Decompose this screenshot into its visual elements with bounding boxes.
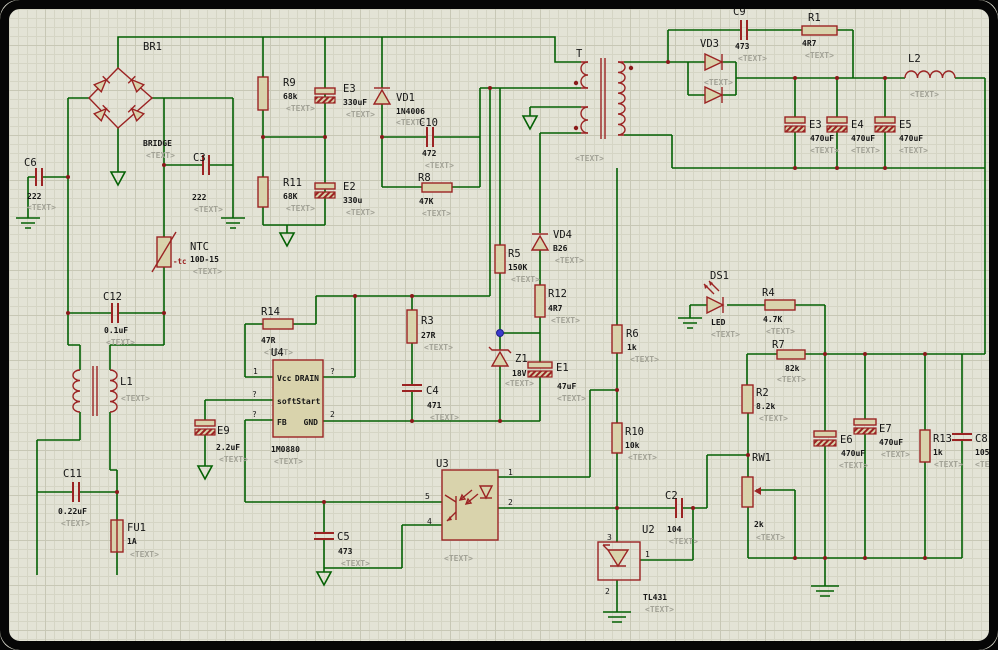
r1-ref-label[interactable]: R1 bbox=[808, 12, 821, 24]
r5-text-placeholder[interactable]: <TEXT> bbox=[511, 275, 540, 284]
u2-pin-number-2: 2 bbox=[605, 587, 610, 596]
e9-text-placeholder[interactable]: <TEXT> bbox=[219, 455, 248, 464]
c4-text-placeholder[interactable]: <TEXT> bbox=[430, 413, 459, 422]
r9-text-placeholder[interactable]: <TEXT> bbox=[286, 104, 315, 113]
c12-ref-label[interactable]: C12 bbox=[103, 291, 122, 303]
r3-text-placeholder[interactable]: <TEXT> bbox=[424, 343, 453, 352]
c11-text-placeholder[interactable]: <TEXT> bbox=[61, 519, 90, 528]
r7-value-label[interactable]: 82k bbox=[785, 364, 800, 373]
c11-ref-label[interactable]: C11 bbox=[63, 468, 82, 480]
ntc-ref-label[interactable]: NTC bbox=[190, 241, 209, 253]
u3-ref-label[interactable]: U3 bbox=[436, 458, 449, 470]
l2-text-placeholder[interactable]: <TEXT> bbox=[910, 90, 939, 99]
e3b-text-placeholder[interactable]: <TEXT> bbox=[810, 146, 839, 155]
r6-ref-label[interactable]: R6 bbox=[626, 328, 639, 340]
e3a-text-placeholder[interactable]: <TEXT> bbox=[346, 110, 375, 119]
e7-value-label[interactable]: 470uF bbox=[879, 438, 903, 447]
r12-value-label[interactable]: 4R7 bbox=[548, 304, 563, 313]
component-u4[interactable]: U4 Vcc DRAIN softStart FB GND 1 ? ? ? 2 … bbox=[252, 347, 335, 466]
u4-pin-label-fb: FB bbox=[277, 418, 287, 427]
r1-text-placeholder[interactable]: <TEXT> bbox=[805, 51, 834, 60]
component-c3[interactable]: C3 222 <TEXT> bbox=[192, 152, 223, 214]
r12-text-placeholder[interactable]: <TEXT> bbox=[551, 316, 580, 325]
component-e6[interactable]: E6 470uF <TEXT> bbox=[814, 431, 868, 470]
e5-value-label[interactable]: 470uF bbox=[899, 134, 923, 143]
component-r3[interactable]: R3 27R <TEXT> bbox=[407, 310, 453, 352]
e2-ref-label[interactable]: E2 bbox=[343, 181, 356, 193]
component-u2[interactable]: U2 3 1 2 TL431 <TEXT> bbox=[598, 524, 674, 614]
c8-text-placeholder[interactable]: <TEXT> bbox=[975, 460, 998, 469]
e6-text-placeholder[interactable]: <TEXT> bbox=[839, 461, 868, 470]
r1-value-label[interactable]: 4R7 bbox=[802, 39, 817, 48]
component-c4[interactable]: C4 471 <TEXT> bbox=[402, 385, 459, 422]
e1-value-label[interactable]: 47uF bbox=[557, 382, 576, 391]
r6-text-placeholder[interactable]: <TEXT> bbox=[630, 355, 659, 364]
r5-value-label[interactable]: 150K bbox=[508, 263, 527, 272]
ds1-text-placeholder[interactable]: <TEXT> bbox=[711, 330, 740, 339]
component-t[interactable]: T <TEXT> bbox=[574, 48, 633, 163]
component-r6[interactable]: R6 1k <TEXT> bbox=[612, 325, 659, 364]
u4-pin-label-drain: DRAIN bbox=[295, 374, 319, 383]
e9-value-label[interactable]: 2.2uF bbox=[216, 443, 240, 452]
z1-ref-label[interactable]: Z1 bbox=[515, 353, 528, 365]
ds1-value-label[interactable]: LED bbox=[711, 318, 726, 327]
schematic-drawing: BR1 BRIDGE <TEXT> C6 222 <TEXT> C3 222 <… bbox=[0, 0, 998, 650]
component-c12[interactable]: C12 0.1uF <TEXT> bbox=[103, 291, 135, 347]
component-ntc[interactable]: NTC 10D-15 -tc <TEXT> bbox=[152, 232, 222, 276]
u2-text-placeholder[interactable]: <TEXT> bbox=[645, 605, 674, 614]
u4-pin-label-softstart: softStart bbox=[277, 397, 321, 406]
l1-text-placeholder[interactable]: <TEXT> bbox=[121, 394, 150, 403]
e6-value-label[interactable]: 470uF bbox=[841, 449, 865, 458]
u3-pin-number-1: 1 bbox=[508, 468, 513, 477]
c6-text-placeholder[interactable]: <TEXT> bbox=[27, 203, 56, 212]
e3a-ref-label[interactable]: E3 bbox=[343, 83, 356, 95]
component-vd3[interactable]: VD3 <TEXT> bbox=[700, 38, 733, 103]
vd3-text-placeholder[interactable]: <TEXT> bbox=[704, 78, 733, 87]
r7-text-placeholder[interactable]: <TEXT> bbox=[777, 375, 806, 384]
component-l1[interactable]: L1 <TEXT> bbox=[73, 366, 150, 416]
u4-pin-label-gnd: GND bbox=[304, 418, 319, 427]
r6-value-label[interactable]: 1k bbox=[627, 343, 637, 352]
c10-ref-label[interactable]: C10 bbox=[419, 117, 438, 129]
c2-text-placeholder[interactable]: <TEXT> bbox=[669, 537, 698, 546]
c5-value-label[interactable]: 473 bbox=[338, 547, 353, 556]
l1-ref-label[interactable]: L1 bbox=[120, 376, 133, 388]
l2-ref-label[interactable]: L2 bbox=[908, 53, 921, 65]
c3-ref-label[interactable]: C3 bbox=[193, 152, 206, 164]
u3-pin-number-5: 5 bbox=[425, 492, 430, 501]
fu1-text-placeholder[interactable]: <TEXT> bbox=[130, 550, 159, 559]
br1-value-label[interactable]: BRIDGE bbox=[143, 139, 172, 148]
c9-value-label[interactable]: 473 bbox=[735, 42, 750, 51]
r4-text-placeholder[interactable]: <TEXT> bbox=[766, 327, 795, 336]
r11-value-label[interactable]: 68K bbox=[283, 192, 298, 201]
component-r12[interactable]: R12 4R7 <TEXT> bbox=[535, 285, 580, 325]
r7-ref-label[interactable]: R7 bbox=[772, 339, 785, 351]
t-ref-label[interactable]: T bbox=[576, 48, 583, 60]
r14-value-label[interactable]: 47R bbox=[261, 336, 276, 345]
u2-ref-label[interactable]: U2 bbox=[642, 524, 655, 536]
r3-ref-label[interactable]: R3 bbox=[421, 315, 434, 327]
vd1-value-label[interactable]: 1N4006 bbox=[396, 107, 425, 116]
component-e9[interactable]: E9 2.2uF <TEXT> bbox=[195, 420, 248, 464]
r11-text-placeholder[interactable]: <TEXT> bbox=[286, 204, 315, 213]
schematic-editor-canvas: BR1 BRIDGE <TEXT> C6 222 <TEXT> C3 222 <… bbox=[0, 0, 998, 650]
e7-text-placeholder[interactable]: <TEXT> bbox=[881, 450, 910, 459]
r13-ref-label[interactable]: R13 bbox=[933, 433, 952, 445]
r10-value-label[interactable]: 10k bbox=[625, 441, 640, 450]
u4-pin-number-1: 1 bbox=[253, 367, 258, 376]
r8-value-label[interactable]: 47K bbox=[419, 197, 434, 206]
component-br1[interactable]: BR1 BRIDGE <TEXT> bbox=[89, 41, 175, 160]
z1-text-placeholder[interactable]: <TEXT> bbox=[505, 379, 534, 388]
c2-ref-label[interactable]: C2 bbox=[665, 490, 678, 502]
c10-text-placeholder[interactable]: <TEXT> bbox=[425, 161, 454, 170]
vd4-ref-label[interactable]: VD4 bbox=[553, 229, 572, 241]
br1-ref-label[interactable]: BR1 bbox=[143, 41, 162, 53]
r8-ref-label[interactable]: R8 bbox=[418, 172, 431, 184]
c5-ref-label[interactable]: C5 bbox=[337, 531, 350, 543]
ds1-ref-label[interactable]: DS1 bbox=[710, 270, 729, 282]
component-r13[interactable]: R13 1k <TEXT> bbox=[920, 430, 963, 469]
e4-value-label[interactable]: 470uF bbox=[851, 134, 875, 143]
component-r9[interactable]: R9 68k <TEXT> bbox=[258, 77, 315, 113]
vd1-ref-label[interactable]: VD1 bbox=[396, 92, 415, 104]
component-r4[interactable]: R4 4.7K <TEXT> bbox=[762, 287, 795, 336]
r2-text-placeholder[interactable]: <TEXT> bbox=[759, 414, 788, 423]
r12-ref-label[interactable]: R12 bbox=[548, 288, 567, 300]
component-r10[interactable]: R10 10k <TEXT> bbox=[612, 423, 657, 462]
c2-value-label[interactable]: 104 bbox=[667, 525, 682, 534]
r11-ref-label[interactable]: R11 bbox=[283, 177, 302, 189]
c12-value-label[interactable]: 0.1uF bbox=[104, 326, 128, 335]
rw1-text-placeholder[interactable]: <TEXT> bbox=[756, 533, 785, 542]
u4-pin-label-vcc: Vcc bbox=[277, 374, 292, 383]
c3-value-label[interactable]: 222 bbox=[192, 193, 207, 202]
vd4-value-label[interactable]: B26 bbox=[553, 244, 568, 253]
r13-value-label[interactable]: 1k bbox=[933, 448, 943, 457]
e3b-value-label[interactable]: 470uF bbox=[810, 134, 834, 143]
r14-ref-label[interactable]: R14 bbox=[261, 306, 280, 318]
e3a-value-label[interactable]: 330uF bbox=[343, 98, 367, 107]
e2-text-placeholder[interactable]: <TEXT> bbox=[346, 208, 375, 217]
r2-value-label[interactable]: 8.2k bbox=[756, 402, 775, 411]
c4-ref-label[interactable]: C4 bbox=[426, 385, 439, 397]
origin-marker-dot bbox=[497, 330, 504, 337]
u2-value-label[interactable]: TL431 bbox=[643, 593, 667, 602]
component-r8[interactable]: R8 47K <TEXT> bbox=[418, 172, 452, 218]
c3-text-placeholder[interactable]: <TEXT> bbox=[194, 205, 223, 214]
rw1-ref-label[interactable]: RW1 bbox=[752, 452, 771, 464]
r9-value-label[interactable]: 68k bbox=[283, 92, 298, 101]
c6-value-label[interactable]: 222 bbox=[27, 192, 42, 201]
vd3-ref-label[interactable]: VD3 bbox=[700, 38, 719, 50]
z1-value-label[interactable]: 18V bbox=[512, 369, 527, 378]
r8-text-placeholder[interactable]: <TEXT> bbox=[422, 209, 451, 218]
r13-text-placeholder[interactable]: <TEXT> bbox=[934, 460, 963, 469]
e6-ref-label[interactable]: E6 bbox=[840, 434, 853, 446]
c9-ref-label[interactable]: C9 bbox=[733, 6, 746, 18]
component-c6[interactable]: C6 222 <TEXT> bbox=[24, 157, 56, 212]
u4-pin-number-q1: ? bbox=[252, 390, 257, 399]
ntc-text-placeholder[interactable]: <TEXT> bbox=[193, 267, 222, 276]
c5-text-placeholder[interactable]: <TEXT> bbox=[341, 559, 370, 568]
fu1-ref-label[interactable]: FU1 bbox=[127, 522, 146, 534]
component-c9[interactable]: C9 473 <TEXT> bbox=[733, 6, 767, 63]
c8-ref-label[interactable]: C8 bbox=[975, 433, 988, 445]
ntc-tc-label: -tc bbox=[173, 257, 187, 266]
r2-ref-label[interactable]: R2 bbox=[756, 387, 769, 399]
e4-ref-label[interactable]: E4 bbox=[851, 119, 864, 131]
fu1-value-label[interactable]: 1A bbox=[127, 537, 137, 546]
br1-text-placeholder[interactable]: <TEXT> bbox=[146, 151, 175, 160]
e5-ref-label[interactable]: E5 bbox=[899, 119, 912, 131]
e3b-ref-label[interactable]: E3 bbox=[809, 119, 822, 131]
t-text-placeholder[interactable]: <TEXT> bbox=[575, 154, 604, 163]
u3-pin-number-2: 2 bbox=[508, 498, 513, 507]
c8-value-label[interactable]: 105 bbox=[975, 448, 990, 457]
component-e5[interactable]: E5 470uF <TEXT> bbox=[875, 117, 928, 155]
component-e2[interactable]: E2 330u <TEXT> bbox=[315, 181, 375, 217]
u2-pin-number-1: 1 bbox=[645, 550, 650, 559]
component-e1[interactable]: E1 47uF <TEXT> bbox=[528, 362, 586, 403]
u4-ref-label[interactable]: U4 bbox=[271, 347, 284, 359]
ntc-value-label[interactable]: 10D-15 bbox=[190, 255, 219, 264]
u2-pin-number-3: 3 bbox=[607, 533, 612, 542]
r4-value-label[interactable]: 4.7K bbox=[763, 315, 782, 324]
c6-ref-label[interactable]: C6 bbox=[24, 157, 37, 169]
c9-text-placeholder[interactable]: <TEXT> bbox=[738, 54, 767, 63]
r5-ref-label[interactable]: R5 bbox=[508, 248, 521, 260]
e7-ref-label[interactable]: E7 bbox=[879, 423, 892, 435]
rw1-value-label[interactable]: 2k bbox=[754, 520, 764, 529]
e2-value-label[interactable]: 330u bbox=[343, 196, 362, 205]
u4-value-label[interactable]: 1M0880 bbox=[271, 445, 300, 454]
component-r1[interactable]: R1 4R7 <TEXT> bbox=[802, 12, 837, 60]
u4-pin-number-q2: ? bbox=[252, 410, 257, 419]
component-c5[interactable]: C5 473 <TEXT> bbox=[314, 531, 370, 568]
r4-ref-label[interactable]: R4 bbox=[762, 287, 775, 299]
component-r5[interactable]: R5 150K <TEXT> bbox=[495, 245, 540, 284]
component-r2[interactable]: R2 8.2k <TEXT> bbox=[742, 385, 788, 423]
c4-value-label[interactable]: 471 bbox=[427, 401, 442, 410]
component-c10[interactable]: C10 472 <TEXT> bbox=[419, 117, 454, 170]
u4-pin-number-q3: ? bbox=[330, 367, 335, 376]
c11-value-label[interactable]: 0.22uF bbox=[58, 507, 87, 516]
component-r11[interactable]: R11 68K <TEXT> bbox=[258, 177, 315, 213]
u3-text-placeholder[interactable]: <TEXT> bbox=[444, 554, 473, 563]
e1-text-placeholder[interactable]: <TEXT> bbox=[557, 394, 586, 403]
e4-text-placeholder[interactable]: <TEXT> bbox=[851, 146, 880, 155]
c10-value-label[interactable]: 472 bbox=[422, 149, 437, 158]
component-l2[interactable]: L2 <TEXT> bbox=[905, 53, 955, 99]
r10-text-placeholder[interactable]: <TEXT> bbox=[628, 453, 657, 462]
vd4-text-placeholder[interactable]: <TEXT> bbox=[555, 256, 584, 265]
r10-ref-label[interactable]: R10 bbox=[625, 426, 644, 438]
r3-value-label[interactable]: 27R bbox=[421, 331, 436, 340]
e1-ref-label[interactable]: E1 bbox=[556, 362, 569, 374]
component-c11[interactable]: C11 0.22uF <TEXT> bbox=[58, 468, 90, 528]
schematic-sheet[interactable]: BR1 BRIDGE <TEXT> C6 222 <TEXT> C3 222 <… bbox=[0, 0, 998, 650]
u4-pin-number-2: 2 bbox=[330, 410, 335, 419]
component-r7[interactable]: R7 82k <TEXT> bbox=[772, 339, 806, 384]
r9-ref-label[interactable]: R9 bbox=[283, 77, 296, 89]
e9-ref-label[interactable]: E9 bbox=[217, 425, 230, 437]
component-u3[interactable]: U3 5 4 1 2 <TEXT> bbox=[425, 458, 513, 563]
e5-text-placeholder[interactable]: <TEXT> bbox=[899, 146, 928, 155]
component-e3a[interactable]: E3 330uF <TEXT> bbox=[315, 83, 375, 119]
component-fu1[interactable]: FU1 1A <TEXT> bbox=[111, 520, 159, 559]
u3-pin-number-4: 4 bbox=[427, 517, 432, 526]
u4-text-placeholder[interactable]: <TEXT> bbox=[274, 457, 303, 466]
c12-text-placeholder[interactable]: <TEXT> bbox=[106, 338, 135, 347]
